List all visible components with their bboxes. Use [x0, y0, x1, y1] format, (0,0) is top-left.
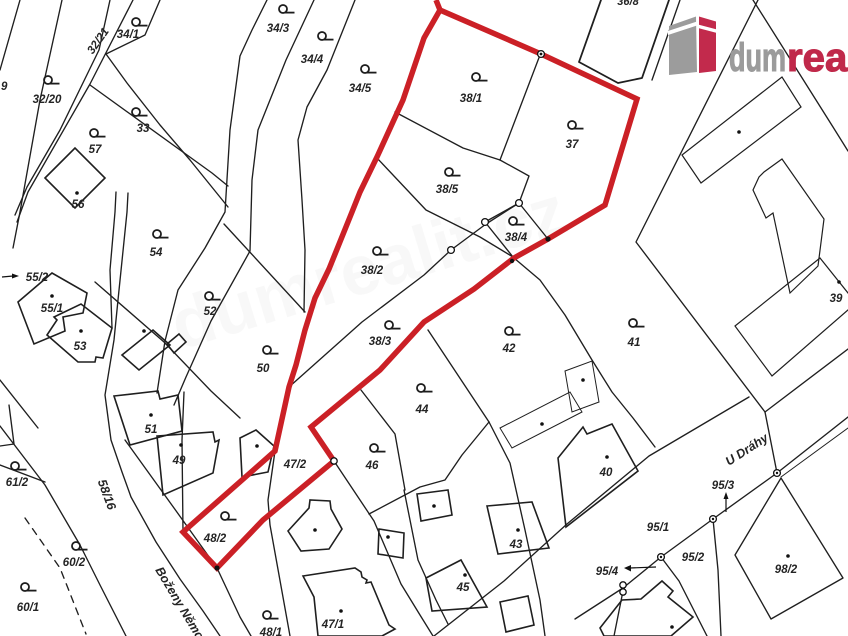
- svg-text:39: 39: [830, 293, 843, 305]
- svg-text:57: 57: [89, 144, 102, 156]
- svg-text:95/3: 95/3: [712, 480, 735, 492]
- svg-text:55/1: 55/1: [41, 303, 63, 315]
- svg-text:54: 54: [150, 247, 163, 259]
- svg-text:41: 41: [627, 337, 641, 349]
- svg-text:38/2: 38/2: [361, 265, 384, 277]
- svg-text:dum: dum: [729, 36, 786, 80]
- svg-text:38/5: 38/5: [436, 184, 459, 196]
- svg-text:38/3: 38/3: [369, 336, 392, 348]
- svg-text:48/2: 48/2: [203, 533, 227, 545]
- svg-text:45: 45: [456, 582, 470, 594]
- svg-text:49: 49: [172, 455, 186, 467]
- svg-text:34/1: 34/1: [117, 29, 139, 41]
- svg-text:51: 51: [145, 424, 158, 436]
- svg-text:9: 9: [1, 81, 8, 93]
- svg-text:38/4: 38/4: [505, 232, 528, 244]
- svg-text:37: 37: [566, 139, 579, 151]
- svg-text:38/1: 38/1: [460, 93, 482, 105]
- svg-text:47/2: 47/2: [283, 459, 307, 471]
- svg-text:32/20: 32/20: [33, 94, 62, 106]
- svg-text:50: 50: [257, 363, 270, 375]
- svg-text:60/1: 60/1: [17, 602, 39, 614]
- svg-text:44: 44: [415, 404, 429, 416]
- svg-text:52: 52: [204, 306, 217, 318]
- svg-text:98/2: 98/2: [775, 564, 798, 576]
- svg-text:95/2: 95/2: [682, 552, 705, 564]
- svg-text:34/3: 34/3: [267, 23, 290, 35]
- svg-text:realit: realit: [787, 36, 848, 80]
- svg-text:95/1: 95/1: [647, 522, 669, 534]
- svg-text:36/8: 36/8: [617, 0, 639, 8]
- svg-text:33: 33: [137, 123, 150, 135]
- svg-text:55/2: 55/2: [26, 272, 49, 284]
- svg-text:40: 40: [599, 467, 613, 479]
- svg-text:56: 56: [72, 199, 85, 211]
- svg-text:42: 42: [502, 343, 516, 355]
- svg-text:53: 53: [74, 341, 87, 353]
- svg-text:46: 46: [365, 460, 379, 472]
- svg-text:60/2: 60/2: [63, 557, 86, 569]
- svg-text:47/1: 47/1: [321, 619, 344, 631]
- svg-text:43: 43: [509, 539, 523, 551]
- svg-text:61/2: 61/2: [6, 477, 29, 489]
- svg-text:34/4: 34/4: [301, 54, 324, 66]
- svg-text:34/5: 34/5: [349, 83, 372, 95]
- svg-text:95/4: 95/4: [596, 566, 619, 578]
- svg-text:48/1: 48/1: [259, 627, 282, 636]
